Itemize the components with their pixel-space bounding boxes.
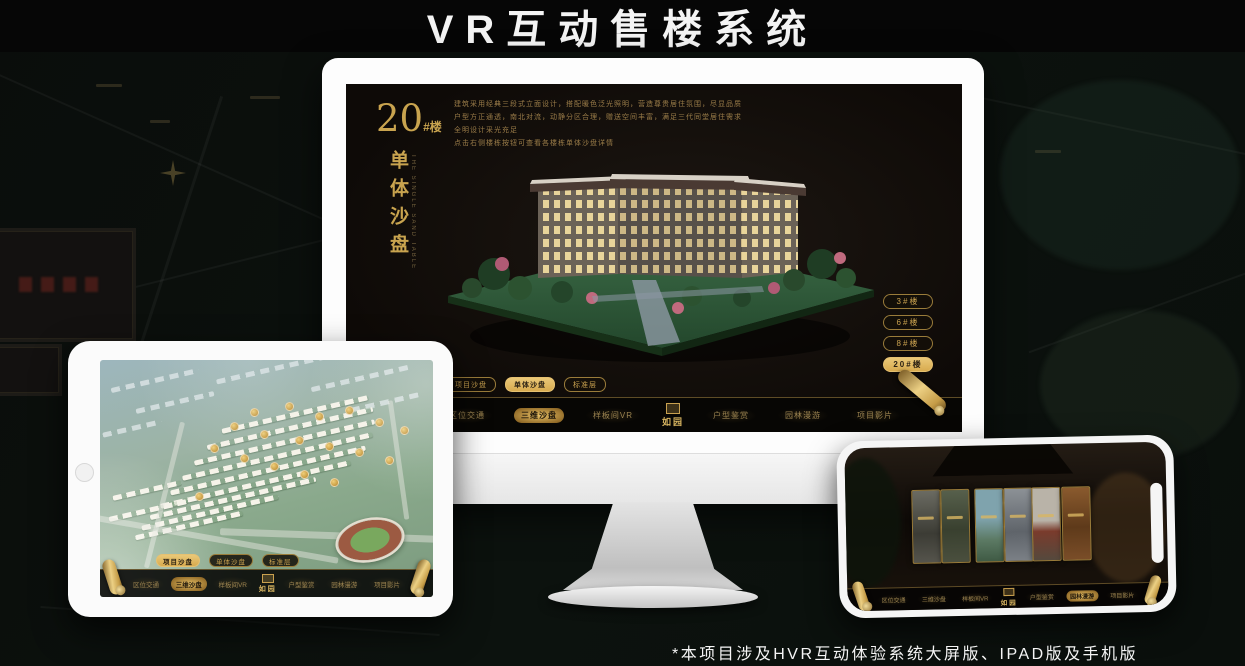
nav-item-floorplan[interactable]: 户型鉴赏 — [283, 577, 319, 591]
bg-map-road — [0, 65, 362, 238]
phone-device: 区位交通 三维沙盘 样板间VR 如园 户型鉴赏 园林漫游 项目影片 — [836, 434, 1177, 618]
tab-standard-floor[interactable]: 标准层 — [262, 554, 299, 567]
nav-item-project-film[interactable]: 项目影片 — [369, 577, 405, 591]
building-marker[interactable] — [345, 406, 354, 415]
brand-logo-text: 如园 — [1001, 596, 1018, 606]
tab-standard-floor[interactable]: 标准层 — [564, 377, 606, 392]
nav-item-3d-sandtable[interactable]: 三维沙盘 — [514, 408, 564, 423]
brand-seal-icon — [1003, 587, 1014, 595]
nav-item-modelroom-vr[interactable]: 样板间VR — [958, 592, 993, 604]
building-model[interactable] — [442, 146, 878, 386]
gallery-panel[interactable] — [974, 488, 1005, 563]
tab-project-sandtable[interactable]: 项目沙盘 — [156, 554, 200, 567]
estate-road — [144, 422, 185, 569]
building-marker[interactable] — [355, 448, 364, 457]
city-blocks — [102, 419, 162, 437]
nav-item-3d-sandtable[interactable]: 三维沙盘 — [918, 593, 950, 605]
city-blocks — [216, 360, 334, 384]
gallery-panel[interactable] — [940, 489, 971, 564]
nav-item-project-film[interactable]: 项目影片 — [850, 408, 900, 423]
plaque-glyph — [85, 277, 98, 292]
building-marker[interactable] — [285, 402, 294, 411]
building-marker[interactable] — [400, 426, 409, 435]
brand-logo-text: 如园 — [662, 415, 684, 428]
building-marker[interactable] — [270, 462, 279, 471]
building-marker[interactable] — [375, 418, 384, 427]
building-marker[interactable] — [295, 436, 304, 445]
bg-plaque-small — [0, 344, 62, 396]
building-marker[interactable] — [195, 492, 204, 501]
phone-screen: 区位交通 三维沙盘 样板间VR 如园 户型鉴赏 园林漫游 项目影片 — [844, 442, 1168, 612]
bg-map-label — [250, 96, 280, 99]
block-title: 20#楼 — [376, 100, 442, 137]
tab-single-sandtable[interactable]: 单体沙盘 — [209, 554, 253, 567]
stadium — [331, 511, 409, 569]
building-marker[interactable] — [240, 454, 249, 463]
building-marker[interactable] — [260, 430, 269, 439]
nav-item-modelroom-vr[interactable]: 样板间VR — [213, 577, 252, 591]
panel-caption — [1068, 513, 1084, 516]
city-blocks — [311, 365, 410, 392]
building-button-8[interactable]: 8#楼 — [883, 336, 933, 351]
panel-caption — [1038, 514, 1054, 517]
plant-silhouette — [844, 457, 902, 588]
bg-map-road — [140, 96, 223, 344]
home-button[interactable] — [75, 463, 94, 482]
bg-plaque — [0, 228, 136, 342]
description-line: 全明设计采光充足 — [454, 124, 764, 137]
poster-stage: VR互动售楼系统 20#楼 单体沙盘 THE SINGLE SAND TABLE… — [0, 0, 1245, 666]
bg-map-label — [96, 84, 122, 87]
tab-single-sandtable[interactable]: 单体沙盘 — [505, 377, 555, 392]
building-button-6[interactable]: 6#楼 — [883, 315, 933, 330]
building-marker[interactable] — [315, 412, 324, 421]
nav-item-garden-tour[interactable]: 园林漫游 — [326, 577, 362, 591]
pavilion-silhouette — [922, 443, 1083, 476]
nav-item-location[interactable]: 区位交通 — [877, 594, 909, 606]
building-marker[interactable] — [330, 478, 339, 487]
compass-icon — [160, 160, 186, 186]
phone-bottom-nav: 区位交通 三维沙盘 样板间VR 如园 户型鉴赏 园林漫游 项目影片 — [847, 582, 1168, 612]
description-line: 建筑采用经典三段式立面设计，搭配暖色泛光照明，营造尊贵居住氛围，尽显品质 — [454, 98, 764, 111]
building-button-list: 3#楼 6#楼 8#楼 20#楼 — [883, 294, 933, 372]
ipad-bottom-nav: 区位交通 三维沙盘 样板间VR 如园 户型鉴赏 园林漫游 项目影片 — [100, 569, 433, 597]
block-number: 20 — [376, 97, 423, 140]
brand-logo: 如园 — [1000, 587, 1017, 606]
plaque-glyph — [19, 277, 32, 292]
sub-tab-bar: 项目沙盘 单体沙盘 标准层 — [446, 377, 606, 392]
brand-logo: 如园 — [259, 574, 277, 594]
building-marker[interactable] — [325, 442, 334, 451]
block-subtitle-en: THE SINGLE SAND TABLE — [410, 154, 416, 314]
nav-item-floorplan[interactable]: 户型鉴赏 — [1026, 590, 1058, 602]
panel-caption — [947, 516, 963, 519]
tab-project-sandtable[interactable]: 项目沙盘 — [446, 377, 496, 392]
monitor-stand — [563, 502, 743, 590]
building-marker[interactable] — [300, 470, 309, 479]
nav-item-project-film[interactable]: 项目影片 — [1106, 589, 1138, 601]
nav-item-garden-tour[interactable]: 园林漫游 — [778, 408, 828, 423]
bg-map-label — [150, 120, 170, 123]
panel-caption — [1010, 515, 1026, 518]
block-number-suffix: #楼 — [423, 120, 442, 134]
nav-item-floorplan[interactable]: 户型鉴赏 — [706, 408, 756, 423]
building-marker[interactable] — [250, 408, 259, 417]
city-blocks — [111, 368, 200, 393]
page-title: VR互动售楼系统 — [427, 0, 819, 55]
block-subtitle: 单体沙盘 — [384, 150, 411, 330]
block-description: 建筑采用经典三段式立面设计，搭配暖色泛光照明，营造尊贵居住氛围，尽显品质 户型方… — [454, 98, 764, 150]
gallery-panel[interactable] — [1003, 487, 1034, 562]
ipad-screen: 项目沙盘 单体沙盘 标准层 区位交通 三维沙盘 样板间VR 如园 户型鉴赏 园林… — [100, 360, 433, 597]
brand-seal-icon — [262, 574, 274, 583]
city-blocks — [135, 391, 214, 414]
gallery-panel[interactable] — [1061, 486, 1092, 561]
monitor-stand-base — [548, 586, 758, 608]
description-line: 户型方正通透，南北对流，动静分区合理，赠送空间丰富，满足三代同堂居住需求 — [454, 111, 764, 124]
nav-item-garden-tour[interactable]: 园林漫游 — [1066, 590, 1098, 602]
ipad-device: 项目沙盘 单体沙盘 标准层 区位交通 三维沙盘 样板间VR 如园 户型鉴赏 园林… — [68, 341, 453, 617]
panel-caption — [918, 517, 934, 520]
panel-caption — [981, 515, 997, 518]
brand-logo-text: 如园 — [259, 584, 277, 594]
building-button-3[interactable]: 3#楼 — [883, 294, 933, 309]
phone-notch — [1150, 483, 1164, 563]
building-marker[interactable] — [230, 422, 239, 431]
plaque-glyph — [41, 277, 54, 292]
nav-item-location[interactable]: 区位交通 — [128, 577, 164, 591]
ipad-sub-tab-bar: 项目沙盘 单体沙盘 标准层 — [156, 554, 299, 567]
brand-seal-icon — [666, 403, 680, 414]
plaque-glyph — [63, 277, 76, 292]
building-marker[interactable] — [385, 456, 394, 465]
title-band: VR互动售楼系统 — [0, 0, 1245, 52]
gallery-panel[interactable] — [1031, 487, 1062, 562]
nav-item-modelroom-vr[interactable]: 样板间VR — [586, 408, 640, 423]
nav-item-3d-sandtable[interactable]: 三维沙盘 — [171, 577, 207, 591]
bg-scenery — [1000, 80, 1240, 270]
building-marker[interactable] — [210, 444, 219, 453]
footnote-text: *本项目涉及HVR互动体验系统大屏版、IPAD版及手机版 — [672, 640, 1138, 664]
gallery-panel[interactable] — [911, 489, 942, 564]
brand-logo: 如园 — [662, 403, 684, 428]
